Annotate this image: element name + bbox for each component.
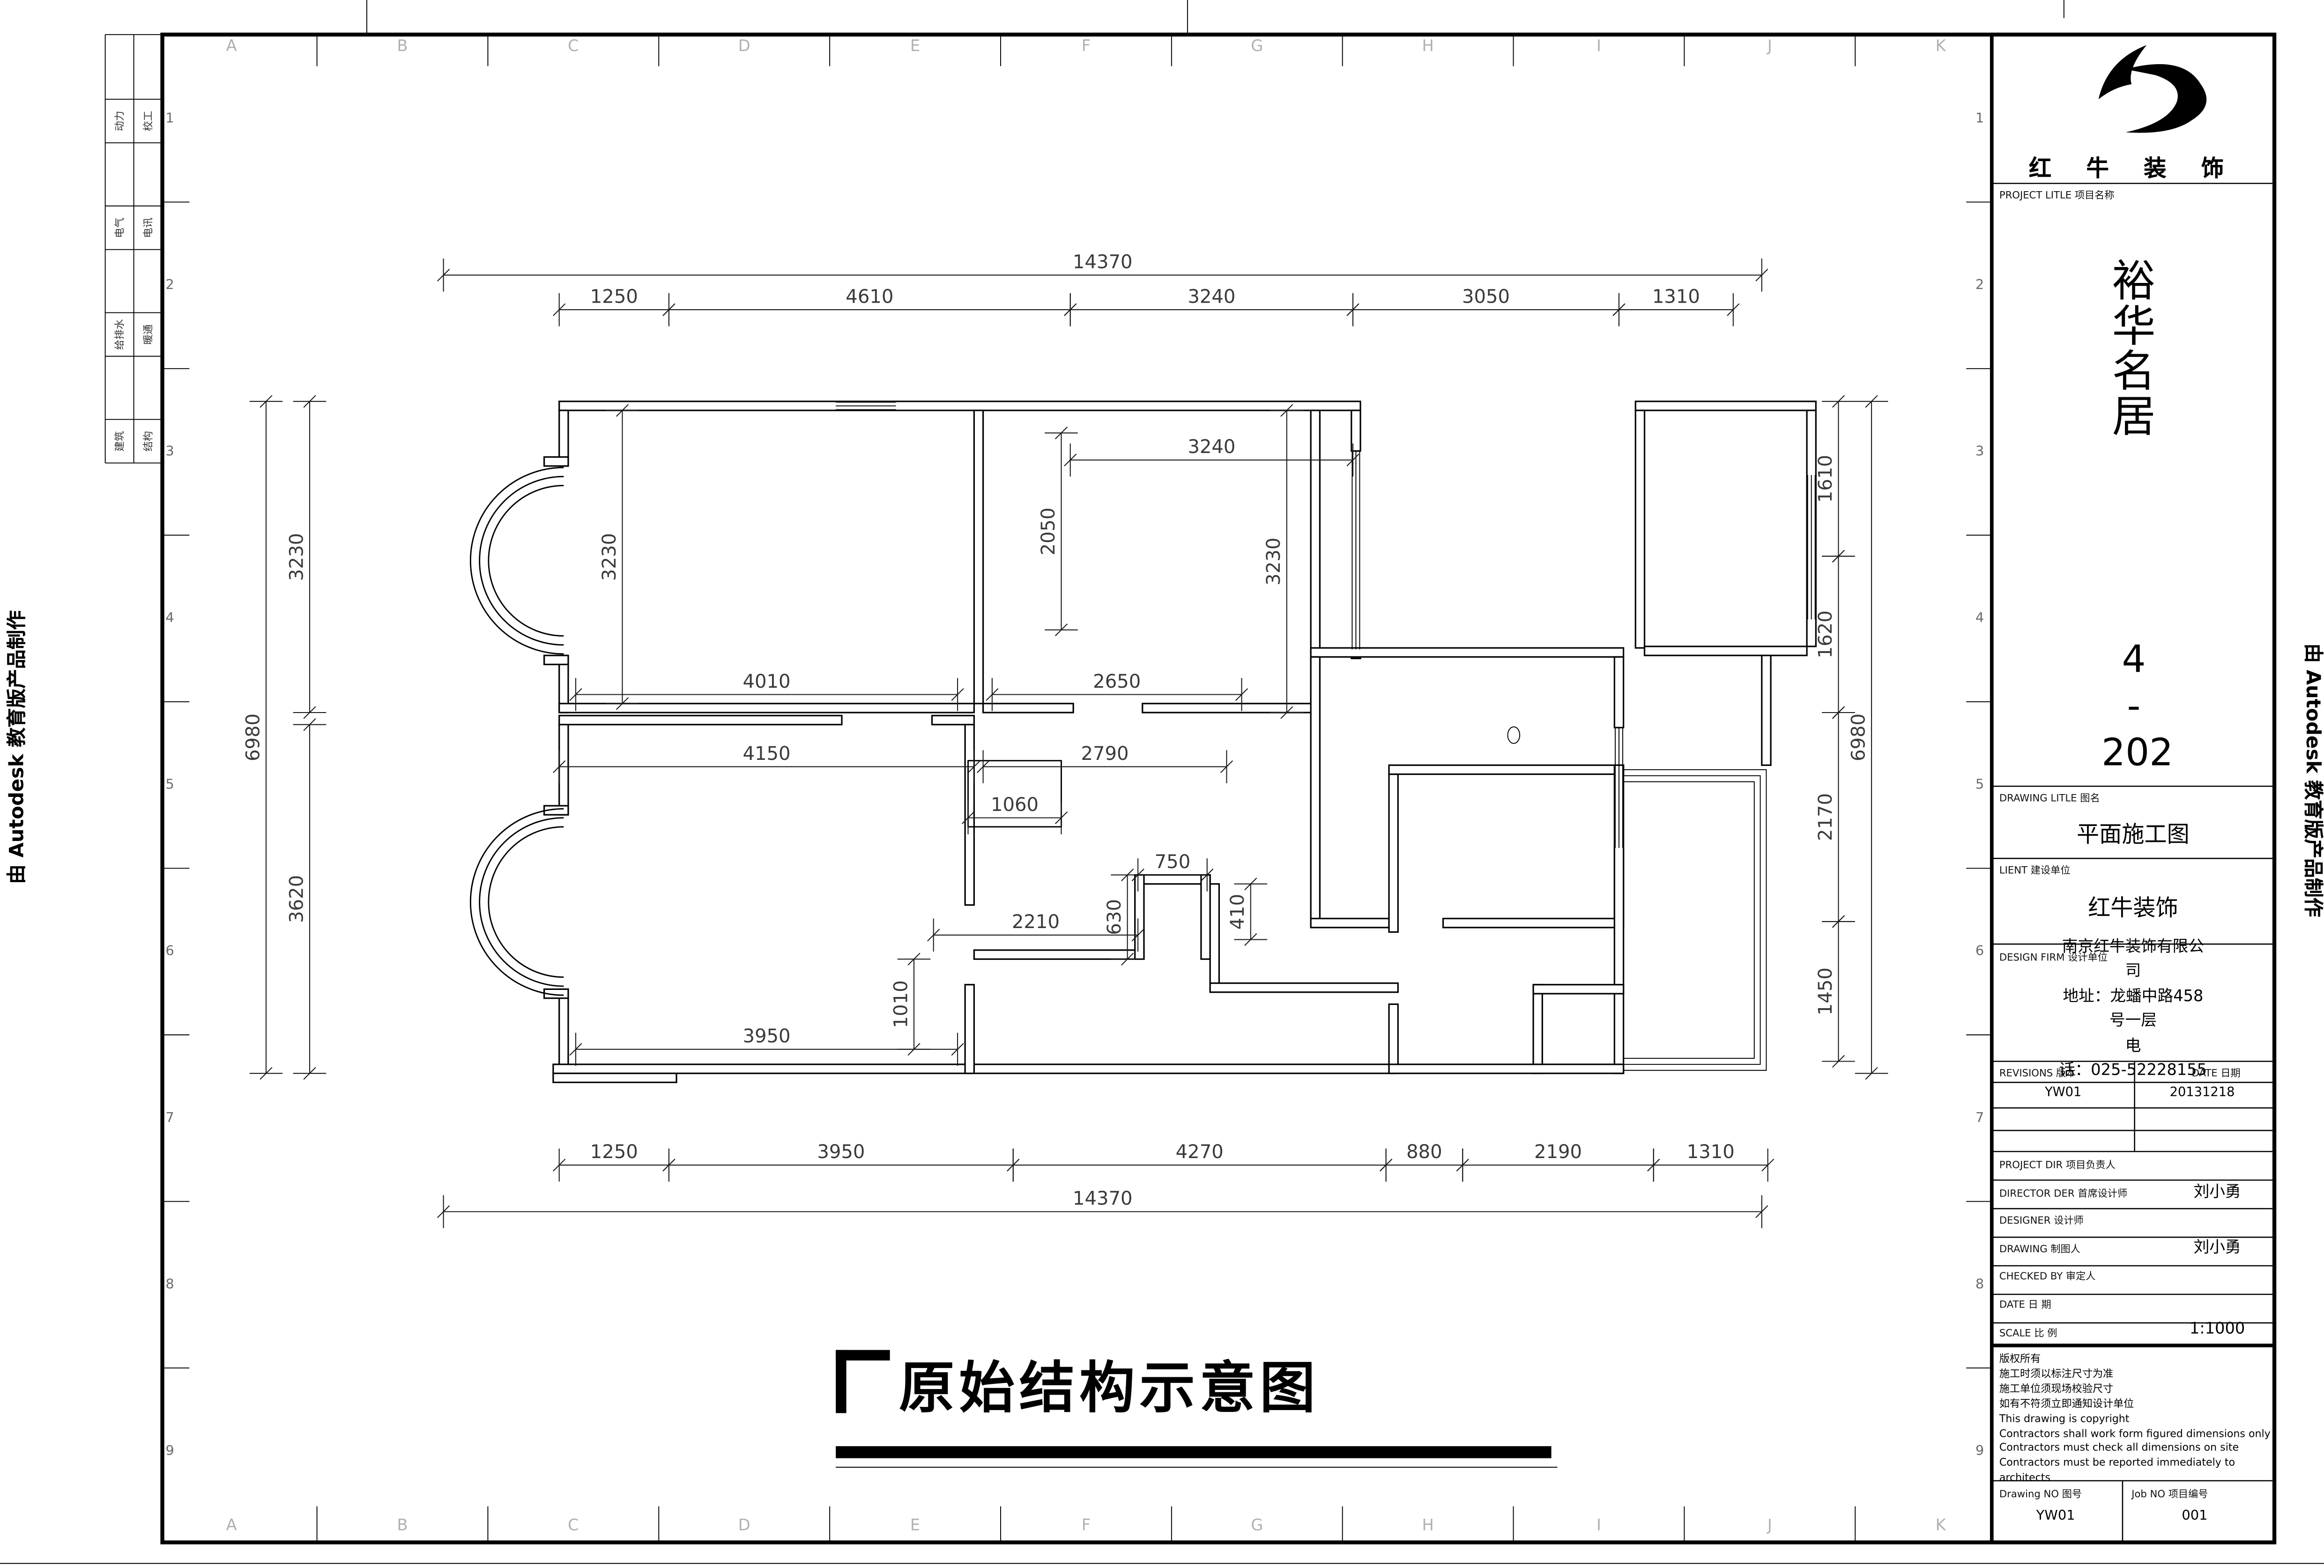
wall — [1389, 774, 1398, 932]
dim-text: 2 — [165, 276, 174, 292]
dim-text: 2210 — [1012, 911, 1060, 933]
list-item: 号一层 — [1992, 1009, 2274, 1034]
dim-text: F — [1082, 37, 1091, 55]
list-item: 施工单位须现场校验尺寸 — [1999, 1383, 2273, 1398]
bay-window-arc — [470, 468, 564, 654]
autodesk-stamp-left: 由 Autodesk 教育版产品制作 — [1, 610, 30, 884]
wall — [1389, 1064, 1624, 1073]
project-name-num: 4 — [2110, 638, 2157, 681]
dim-text: 2050 — [1038, 507, 1059, 555]
dim-text: 3950 — [817, 1141, 865, 1163]
list-item: 施工时须以标注尺寸为准 — [1999, 1368, 2273, 1383]
dim-text: K — [1936, 1516, 1946, 1534]
tb-row-value: 刘小勇 — [2165, 1235, 2270, 1258]
tb-row-label: DRAWING 制图人 — [1999, 1240, 2080, 1255]
list-item: 司 — [1992, 960, 2274, 985]
dim-text: I — [1596, 37, 1601, 55]
dim-text: C — [568, 37, 579, 55]
dim-text: 3230 — [286, 533, 307, 581]
wall — [1201, 875, 1210, 959]
dim-text: 1 — [165, 110, 174, 126]
tb-row-label: CHECKED BY 审定人 — [1999, 1268, 2096, 1283]
wall — [1533, 985, 1624, 994]
dim-text: 410 — [1227, 894, 1248, 930]
wall — [1210, 983, 1398, 992]
dim-text: 6 — [165, 943, 174, 959]
dim-text: F — [1082, 1516, 1091, 1534]
wall — [965, 985, 974, 1073]
dim-text: 3240 — [1188, 286, 1235, 307]
wall — [932, 715, 974, 724]
dim-text: 9 — [165, 1442, 174, 1458]
dim-text: 1010 — [890, 981, 912, 1028]
wall — [1533, 985, 1542, 1073]
wall — [1389, 765, 1624, 774]
dim-text: 给排水 — [114, 319, 126, 350]
project-title-label: PROJECT LITLE 项目名称 — [1999, 186, 2115, 201]
dim-text: 880 — [1406, 1141, 1442, 1163]
dim-text: G — [1251, 37, 1263, 55]
list-item: 如有不符须立即通知设计单位 — [1999, 1397, 2273, 1412]
drawing-no-value: YW01 — [1999, 1509, 2112, 1524]
dim-text: 校工 — [143, 111, 155, 132]
dim-text: 1610 — [1815, 455, 1836, 503]
dim-text: 6 — [1975, 943, 1984, 959]
wall — [1311, 657, 1320, 918]
dim-text: 6980 — [1848, 713, 1869, 761]
dim-text: 6980 — [242, 713, 264, 761]
autodesk-stamp-right: 由 Autodesk 教育版产品制作 — [2301, 643, 2324, 917]
dim-text: 4270 — [1176, 1141, 1224, 1163]
wall — [974, 410, 983, 704]
dim-text: J — [1767, 1516, 1772, 1534]
tb-row-label: DIRECTOR DER 首席设计师 — [1999, 1184, 2127, 1199]
bay-window-arc — [470, 809, 564, 995]
client-value: 红牛装饰 — [1992, 892, 2274, 923]
tb-row-value: 刘小勇 — [2165, 1180, 2270, 1202]
dim-text: 4 — [165, 609, 174, 625]
logo-bull-body — [2125, 64, 2206, 133]
dim-text: 3 — [165, 443, 174, 459]
dim-text: 5 — [1975, 776, 1984, 792]
drawing-sheet: AABBCCDDEEFFGGHHIIJJKK112233445566778899… — [0, 0, 2324, 1568]
dim-text: 4 — [1975, 609, 1984, 625]
dim-text: E — [910, 37, 920, 55]
list-item: 地址：龙蟠中路458 — [1992, 984, 2274, 1009]
dim-text: 建筑 — [114, 431, 126, 452]
wall — [559, 715, 842, 724]
project-name-dash: - — [2110, 684, 2157, 728]
revision-date: 20131218 — [2142, 1085, 2263, 1100]
list-item: Contractors must be reported immediately… — [1999, 1457, 2273, 1487]
wall — [1645, 647, 1807, 655]
design-firm-value: 南京红牛装饰有限公司地址：龙蟠中路458号一层电话：025-52228155 — [1992, 935, 2274, 1083]
tb-row-label: PROJECT DIR 项目负责人 — [1999, 1156, 2116, 1171]
dim-text: 动力 — [114, 111, 126, 132]
dim-text: 630 — [1104, 899, 1125, 935]
balcony-rail — [1624, 776, 1760, 1064]
dim-text: K — [1936, 37, 1946, 55]
wall — [559, 989, 568, 1073]
wall — [1614, 657, 1623, 728]
dim-text: 3 — [1975, 443, 1984, 459]
wall — [1135, 875, 1144, 959]
dim-text: 2190 — [1534, 1141, 1582, 1163]
wall — [559, 401, 1360, 410]
list-item: This drawing is copyright — [1999, 1412, 2273, 1427]
dim-text: D — [738, 37, 750, 55]
dim-text: E — [910, 1516, 920, 1534]
dim-text: 结构 — [143, 431, 155, 452]
revision-no: YW01 — [2007, 1085, 2120, 1100]
dim-text: 3620 — [286, 875, 307, 923]
dim-text: 4610 — [846, 286, 893, 307]
dim-text: 1060 — [991, 794, 1039, 816]
dim-text: 2650 — [1093, 671, 1141, 692]
list-item: Contractors shall work form figured dime… — [1999, 1427, 2273, 1442]
dim-text: 8 — [1975, 1276, 1984, 1292]
dim-text: 电讯 — [143, 217, 155, 238]
wall — [559, 725, 568, 815]
wall — [1210, 884, 1219, 992]
logo-bull-horn — [2099, 45, 2147, 99]
balcony-rail — [1624, 782, 1754, 1058]
dim-text: 暖通 — [143, 324, 155, 345]
dim-text: A — [226, 37, 237, 55]
dim-text: 1620 — [1815, 610, 1836, 658]
wall — [544, 655, 568, 664]
company-name: 红 牛 装 饰 — [1992, 152, 2274, 183]
dim-text: 3950 — [742, 1026, 790, 1047]
sheet-title: 原始结构示意图 — [899, 1343, 1320, 1424]
dim-text: C — [568, 1516, 579, 1534]
wall — [965, 725, 974, 905]
dim-text: 1250 — [590, 286, 638, 307]
wall — [1311, 648, 1623, 657]
bay-window-arc — [489, 827, 564, 977]
dim-text: 2790 — [1081, 743, 1129, 765]
drawing-no-label: Drawing NO 图号 — [1999, 1485, 2082, 1500]
wall — [544, 457, 568, 466]
dim-text: 3240 — [1188, 436, 1235, 458]
title-underline-thick — [836, 1446, 1551, 1458]
dim-text: H — [1422, 1516, 1433, 1534]
bay-window-arc — [489, 485, 564, 636]
list-item: 南京红牛装饰有限公 — [1992, 935, 2274, 960]
wall — [1762, 655, 1771, 765]
dim-text: 9 — [1975, 1442, 1984, 1458]
dim-text: 14370 — [1073, 252, 1133, 273]
wall — [1143, 704, 1320, 713]
wall — [1635, 401, 1816, 410]
project-name-unit: 202 — [2101, 731, 2166, 774]
dim-text: 1 — [1975, 110, 1984, 126]
dim-text: G — [1251, 1516, 1263, 1534]
list-item: 版权所有 — [1999, 1353, 2273, 1368]
dim-text: I — [1596, 1516, 1601, 1534]
dim-text: 3230 — [599, 533, 620, 581]
tb-row-value: 1:1000 — [2165, 1319, 2270, 1338]
dim-text: 2 — [1975, 276, 1984, 292]
dim-text: 电气 — [114, 217, 126, 238]
dim-text: 1310 — [1687, 1141, 1735, 1163]
tb-row-label: DATE 日 期 — [1999, 1296, 2051, 1311]
cad-linework: AABBCCDDEEFFGGHHIIJJKK112233445566778899… — [0, 0, 2324, 1568]
dim-text: 750 — [1155, 851, 1191, 873]
dim-text: 4010 — [742, 671, 790, 692]
wall — [1311, 919, 1389, 928]
list-item: 话：025-52228155 — [1992, 1058, 2274, 1083]
title-corner-mark — [836, 1350, 846, 1413]
dim-text: A — [226, 1516, 237, 1534]
drawing-title-value: 平面施工图 — [1992, 818, 2274, 849]
door-symbol — [1508, 727, 1520, 743]
dim-text: 2170 — [1815, 793, 1836, 841]
balcony-rail — [1624, 770, 1767, 1070]
project-name-chars: 裕华名居 — [2110, 259, 2157, 440]
dim-text: 4150 — [742, 743, 790, 765]
dim-text: D — [738, 1516, 750, 1534]
list-item: Contractors must check all dimensions on… — [1999, 1442, 2273, 1457]
dim-text: 5 — [165, 776, 174, 792]
tb-row-label: DESIGNER 设计师 — [1999, 1212, 2084, 1227]
tb-row-label: SCALE 比 例 — [1999, 1324, 2057, 1339]
sheet-frame — [163, 35, 2275, 1543]
drawing-title-label: DRAWING LITLE 图名 — [1999, 789, 2100, 804]
list-item: 电 — [1992, 1034, 2274, 1059]
dim-text: J — [1767, 37, 1772, 55]
job-no-value: 001 — [2135, 1509, 2255, 1524]
dim-text: B — [397, 1516, 408, 1534]
wall — [1635, 410, 1644, 648]
dim-text: 7 — [165, 1109, 174, 1125]
dim-text: 1310 — [1652, 286, 1700, 307]
wall — [1389, 1004, 1398, 1074]
dim-text: 8 — [165, 1276, 174, 1292]
wall — [1135, 875, 1210, 884]
dim-text: 14370 — [1073, 1188, 1133, 1210]
job-no-label: Job NO 项目编号 — [2131, 1485, 2208, 1500]
wall — [1443, 919, 1624, 928]
client-label: LIENT 建设单位 — [1999, 862, 2071, 877]
dim-text: 1250 — [590, 1141, 638, 1163]
dim-text: 7 — [1975, 1109, 1984, 1125]
dim-text: 3050 — [1462, 286, 1510, 307]
wall — [974, 950, 1144, 959]
copyright-block: 版权所有施工时须以标注尺寸为准施工单位须现场校验尺寸如有不符须立即通知设计单位T… — [1999, 1353, 2273, 1487]
wall — [983, 704, 1074, 713]
wall — [553, 1073, 676, 1082]
dim-text: 3230 — [1263, 537, 1285, 585]
dim-text: B — [397, 37, 408, 55]
dim-text: 1450 — [1815, 967, 1836, 1015]
dim-text: H — [1422, 37, 1433, 55]
